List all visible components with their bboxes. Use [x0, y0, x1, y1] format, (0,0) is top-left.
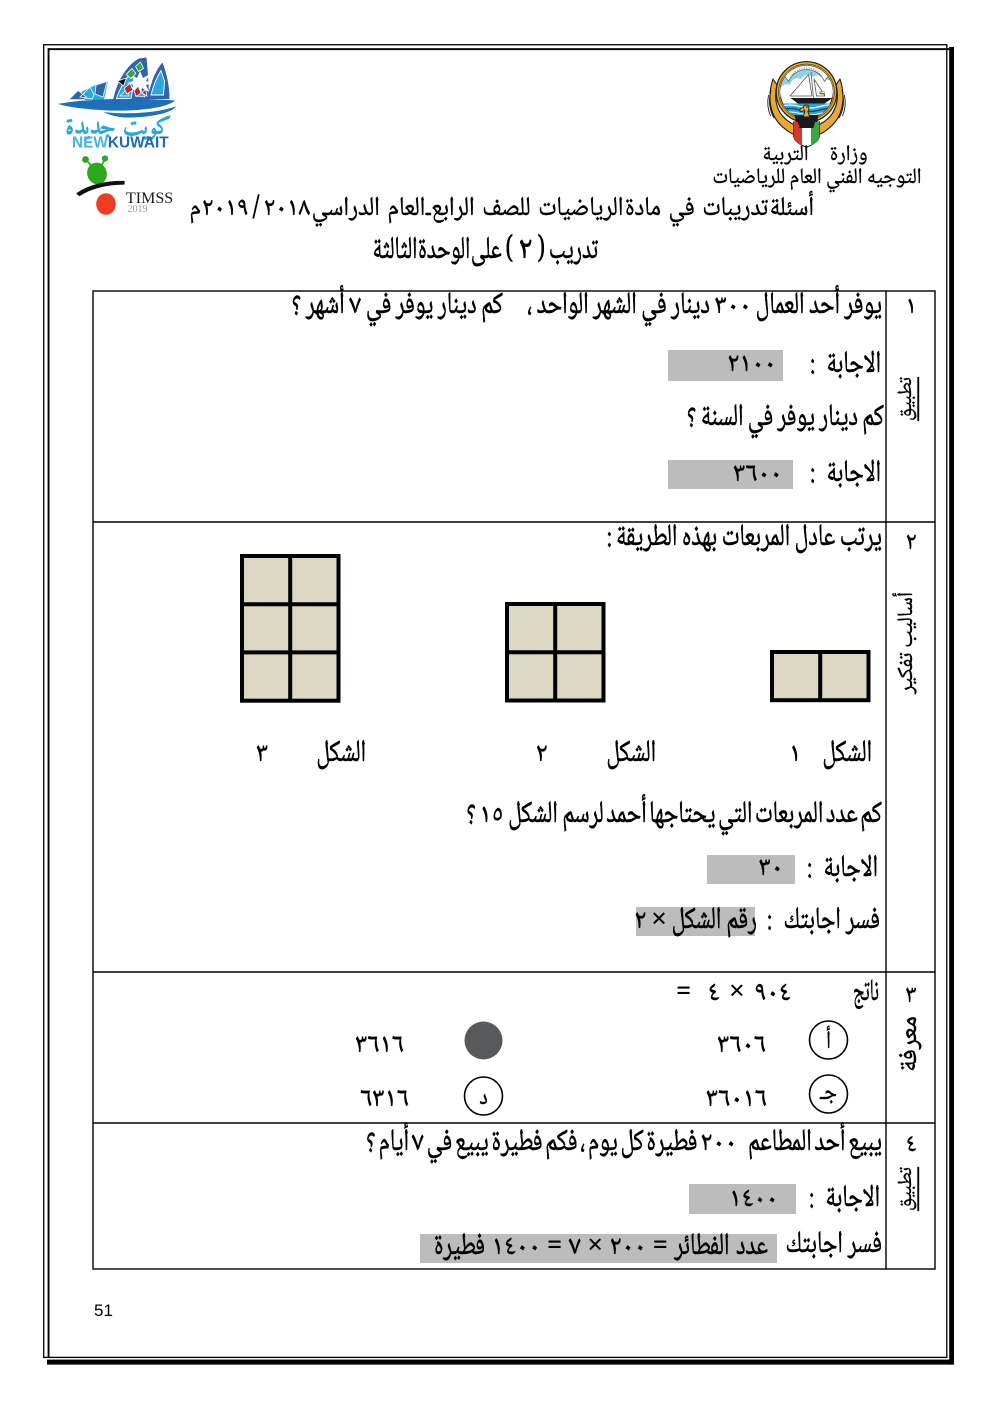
svg-text:51: 51: [94, 1301, 113, 1320]
svg-text:2019: 2019: [128, 204, 148, 215]
svg-text:NEWKUWAIT: NEWKUWAIT: [72, 135, 169, 152]
